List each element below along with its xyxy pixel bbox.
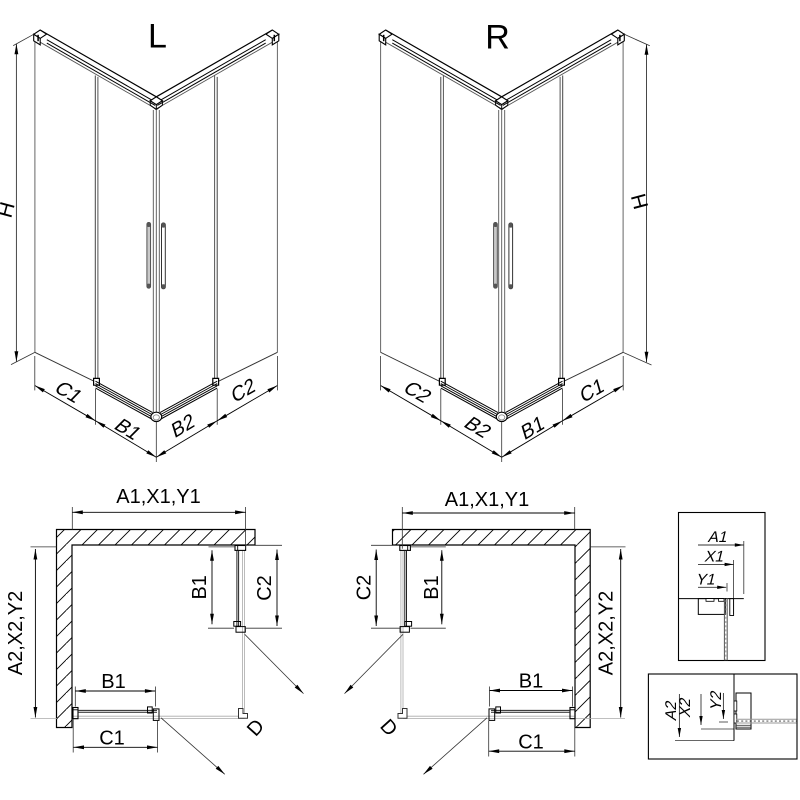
- svg-text:B1: B1: [101, 671, 125, 693]
- svg-text:B1: B1: [189, 575, 211, 599]
- svg-text:C1: C1: [518, 732, 544, 754]
- svg-text:A2,X2,Y2: A2,X2,Y2: [596, 591, 618, 676]
- svg-text:A2,X2,Y2: A2,X2,Y2: [5, 591, 27, 676]
- svg-text:L: L: [148, 18, 167, 56]
- svg-text:B1: B1: [519, 671, 543, 693]
- svg-text:C2: C2: [254, 575, 276, 601]
- svg-text:C2: C2: [354, 575, 376, 601]
- svg-text:C1: C1: [99, 728, 125, 750]
- svg-text:A1,X1,Y1: A1,X1,Y1: [116, 486, 201, 508]
- svg-text:B1: B1: [421, 575, 443, 599]
- svg-text:A1,X1,Y1: A1,X1,Y1: [445, 489, 530, 511]
- svg-text:R: R: [485, 19, 510, 57]
